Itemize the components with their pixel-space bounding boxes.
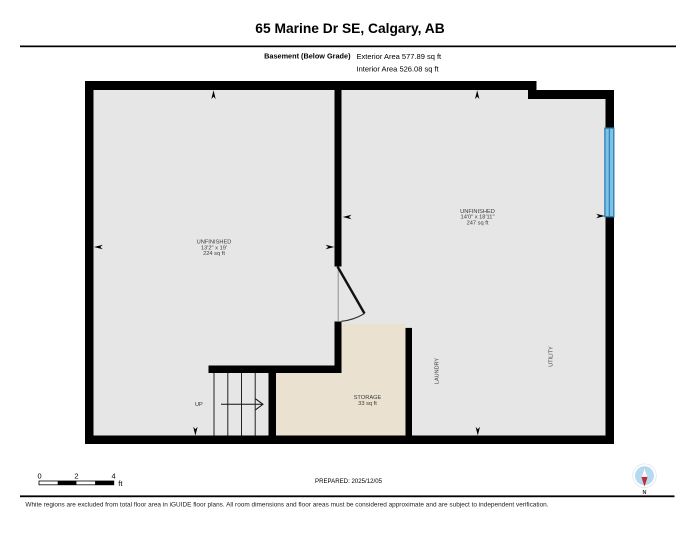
svg-text:PREPARED: 2025/12/05: PREPARED: 2025/12/05 [315, 478, 383, 485]
svg-text:Exterior Area 577.89 sq ft: Exterior Area 577.89 sq ft [357, 52, 443, 61]
svg-text:Basement (Below Grade): Basement (Below Grade) [264, 52, 351, 61]
svg-text:2: 2 [74, 471, 78, 480]
svg-text:247 sq ft: 247 sq ft [467, 220, 489, 226]
svg-text:224 sq ft: 224 sq ft [203, 251, 225, 257]
svg-text:N: N [643, 490, 647, 496]
svg-text:ft: ft [118, 479, 122, 488]
svg-text:4: 4 [111, 471, 115, 480]
svg-text:White regions are excluded fro: White regions are excluded from total fl… [25, 501, 548, 508]
svg-text:0: 0 [37, 471, 41, 480]
svg-text:UTILITY: UTILITY [548, 346, 554, 367]
svg-text:65 Marine Dr SE, Calgary, AB: 65 Marine Dr SE, Calgary, AB [255, 21, 444, 36]
svg-text:33 sq ft: 33 sq ft [358, 401, 377, 407]
svg-text:Interior Area 526.08 sq ft: Interior Area 526.08 sq ft [357, 65, 440, 74]
svg-text:LAUNDRY: LAUNDRY [435, 358, 441, 385]
svg-text:UP: UP [195, 402, 203, 408]
